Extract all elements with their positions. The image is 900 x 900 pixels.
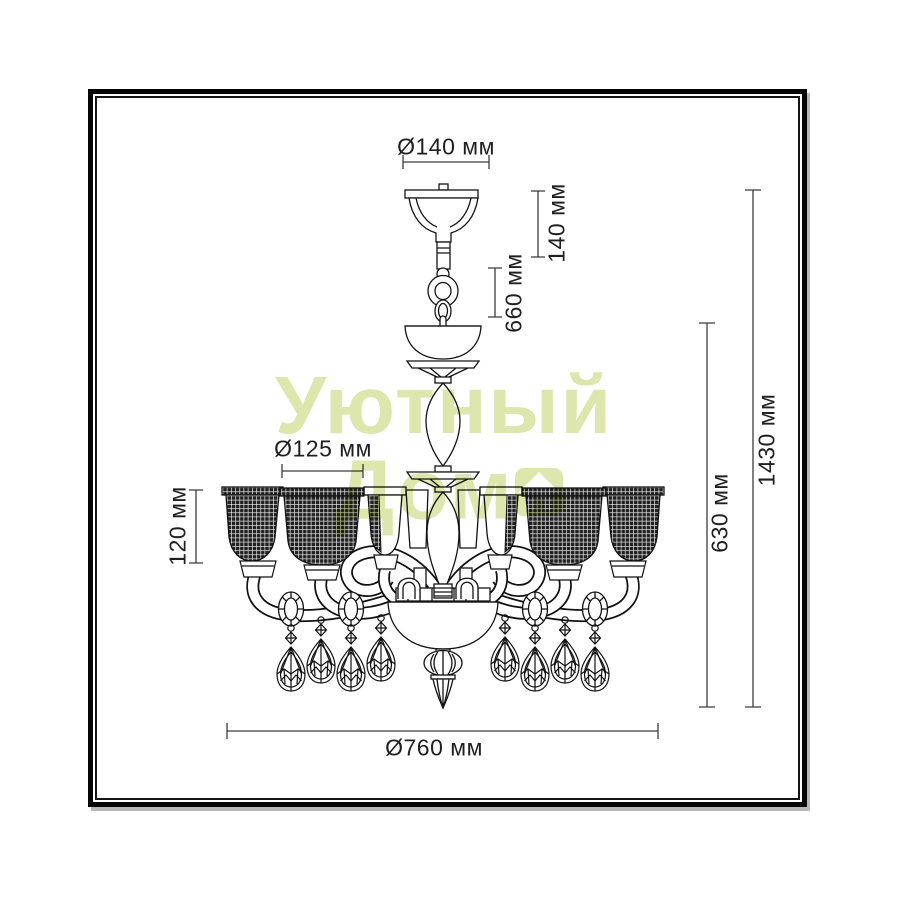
dim-label-shade-height: 120 мм xyxy=(165,486,192,565)
dim-label-chain-section-height: 660 мм xyxy=(501,253,528,332)
dim-label-body-height: 630 мм xyxy=(707,473,734,552)
dim-label-canopy-diameter: Ø140 мм xyxy=(397,134,495,161)
dim-label-total-height: 1430 мм xyxy=(754,394,781,487)
dim-label-shade-diameter: Ø125 мм xyxy=(274,436,372,463)
dim-label-total-diameter: Ø760 мм xyxy=(385,735,483,762)
dim-label-canopy-height: 140 мм xyxy=(544,183,571,262)
diagram-canvas: Уютный Дом Ø140 мм 140 мм 660 мм Ø125 мм… xyxy=(0,0,900,900)
